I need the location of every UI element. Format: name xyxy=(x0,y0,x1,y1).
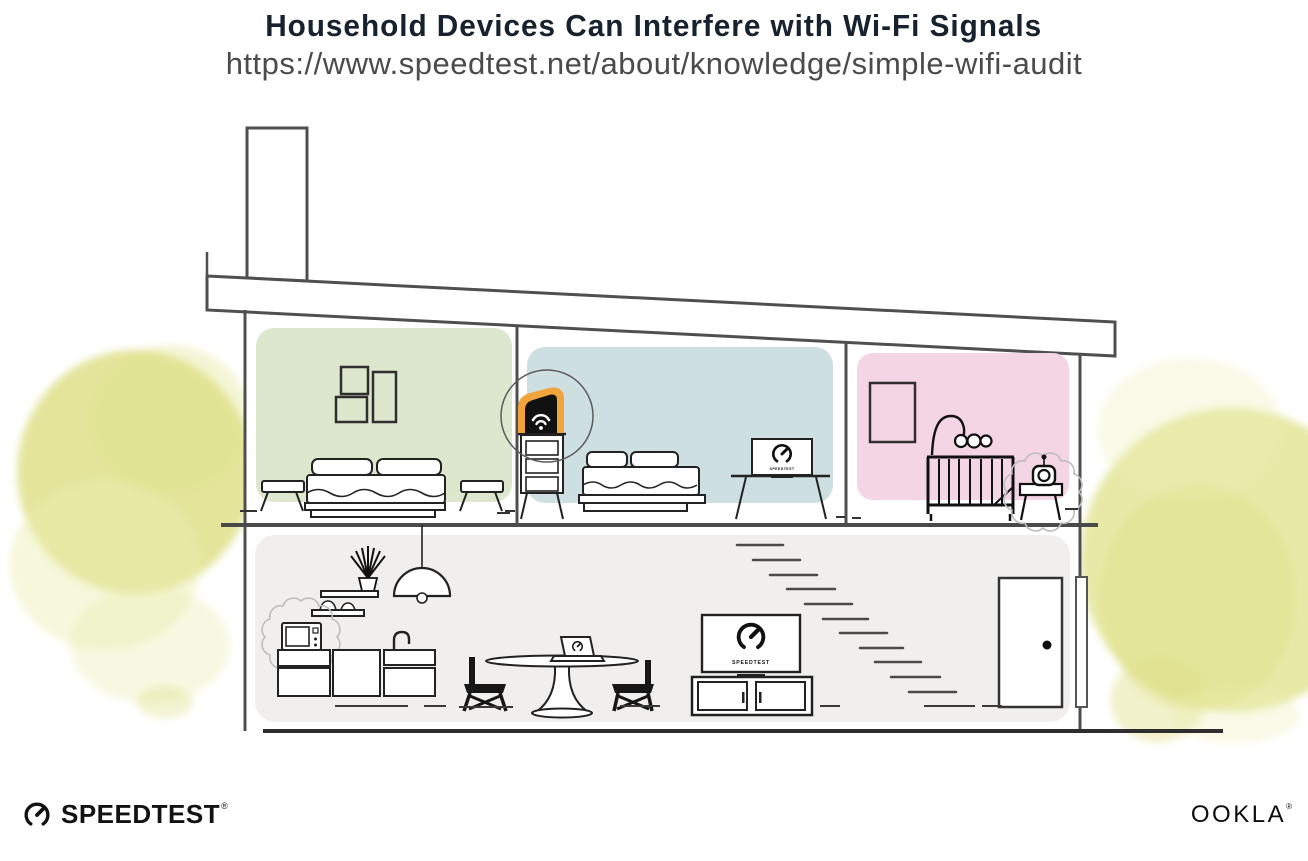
chimney xyxy=(247,128,307,281)
monitor-brand-label: SPEEDTEST xyxy=(770,467,795,471)
bush-right xyxy=(1080,358,1308,743)
infographic-page: Household Devices Can Interfere with Wi-… xyxy=(0,0,1308,861)
bush-left xyxy=(10,345,253,718)
downspout xyxy=(1076,577,1087,707)
house-illustration: SPEEDTEST xyxy=(0,0,1308,861)
speedtest-gauge-icon xyxy=(22,800,52,830)
middle-bedroom: SPEEDTEST xyxy=(497,347,845,519)
entry-door xyxy=(999,578,1062,707)
door-knob xyxy=(1043,641,1052,650)
source-url: https://www.speedtest.net/about/knowledg… xyxy=(0,46,1308,82)
header: Household Devices Can Interfere with Wi-… xyxy=(0,8,1308,82)
living-area: SPEEDTEST xyxy=(255,525,1070,722)
ookla-wordmark: OOKLA xyxy=(1191,801,1286,829)
speedtest-monitor: SPEEDTEST xyxy=(752,439,812,478)
kitchen-cabinets xyxy=(278,650,435,696)
media-console xyxy=(692,677,812,715)
page-title: Household Devices Can Interfere with Wi-… xyxy=(266,8,1043,44)
left-bedroom xyxy=(240,328,515,517)
speedtest-reg-mark: ® xyxy=(221,801,228,811)
speedtest-logo: SPEEDTEST ® xyxy=(22,799,228,830)
ookla-reg-mark: ® xyxy=(1286,802,1292,811)
speedtest-tv: SPEEDTEST xyxy=(702,615,800,677)
ookla-logo: OOKLA ® xyxy=(1191,801,1292,829)
speedtest-wordmark: SPEEDTEST xyxy=(61,799,220,830)
tv-brand-label: SPEEDTEST xyxy=(732,660,770,666)
